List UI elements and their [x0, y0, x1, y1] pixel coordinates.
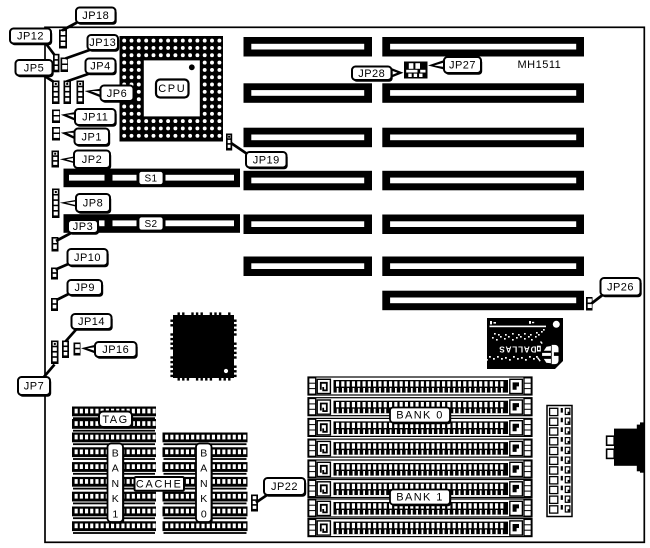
svg-text:JP5: JP5 [24, 63, 44, 75]
svg-text:JP3: JP3 [73, 221, 93, 233]
svg-text:JP7: JP7 [24, 381, 44, 393]
svg-text:JP28: JP28 [358, 68, 385, 80]
svg-text:JP9: JP9 [75, 282, 95, 294]
svg-text:JP10: JP10 [74, 252, 101, 264]
svg-text:N: N [112, 478, 120, 490]
svg-text:B: B [200, 448, 207, 460]
svg-text:JP16: JP16 [102, 344, 129, 356]
svg-text:JP8: JP8 [83, 198, 103, 210]
svg-text:TAG: TAG [102, 414, 128, 426]
svg-text:JP6: JP6 [107, 88, 127, 100]
svg-text:JP13: JP13 [89, 37, 116, 49]
svg-text:CPU: CPU [158, 83, 186, 95]
svg-text:N: N [200, 478, 208, 490]
svg-text:S1: S1 [144, 173, 157, 184]
svg-text:CACHE: CACHE [136, 479, 183, 491]
svg-text:DALLAS: DALLAS [498, 344, 536, 353]
svg-text:JP14: JP14 [78, 316, 105, 328]
svg-text:JP19: JP19 [253, 155, 280, 167]
svg-text:A: A [112, 463, 119, 475]
svg-text:JP2: JP2 [82, 154, 102, 166]
svg-text:JP27: JP27 [449, 60, 476, 72]
svg-text:0: 0 [201, 508, 207, 520]
svg-text:S2: S2 [144, 219, 157, 230]
svg-text:JP22: JP22 [271, 481, 298, 493]
svg-text:JP26: JP26 [607, 282, 634, 294]
svg-text:K: K [200, 493, 207, 505]
svg-text:B: B [112, 448, 119, 460]
svg-text:BANK 1: BANK 1 [396, 492, 444, 504]
svg-text:JP11: JP11 [82, 112, 108, 124]
svg-text:MH1511: MH1511 [518, 59, 562, 71]
svg-text:JP4: JP4 [90, 61, 110, 73]
svg-text:A: A [200, 463, 207, 475]
svg-text:JP18: JP18 [82, 10, 109, 22]
svg-text:JP1: JP1 [82, 132, 102, 144]
svg-text:JP12: JP12 [17, 31, 44, 43]
svg-text:K: K [112, 493, 119, 505]
svg-text:1: 1 [112, 508, 118, 520]
svg-text:BANK 0: BANK 0 [396, 410, 444, 422]
